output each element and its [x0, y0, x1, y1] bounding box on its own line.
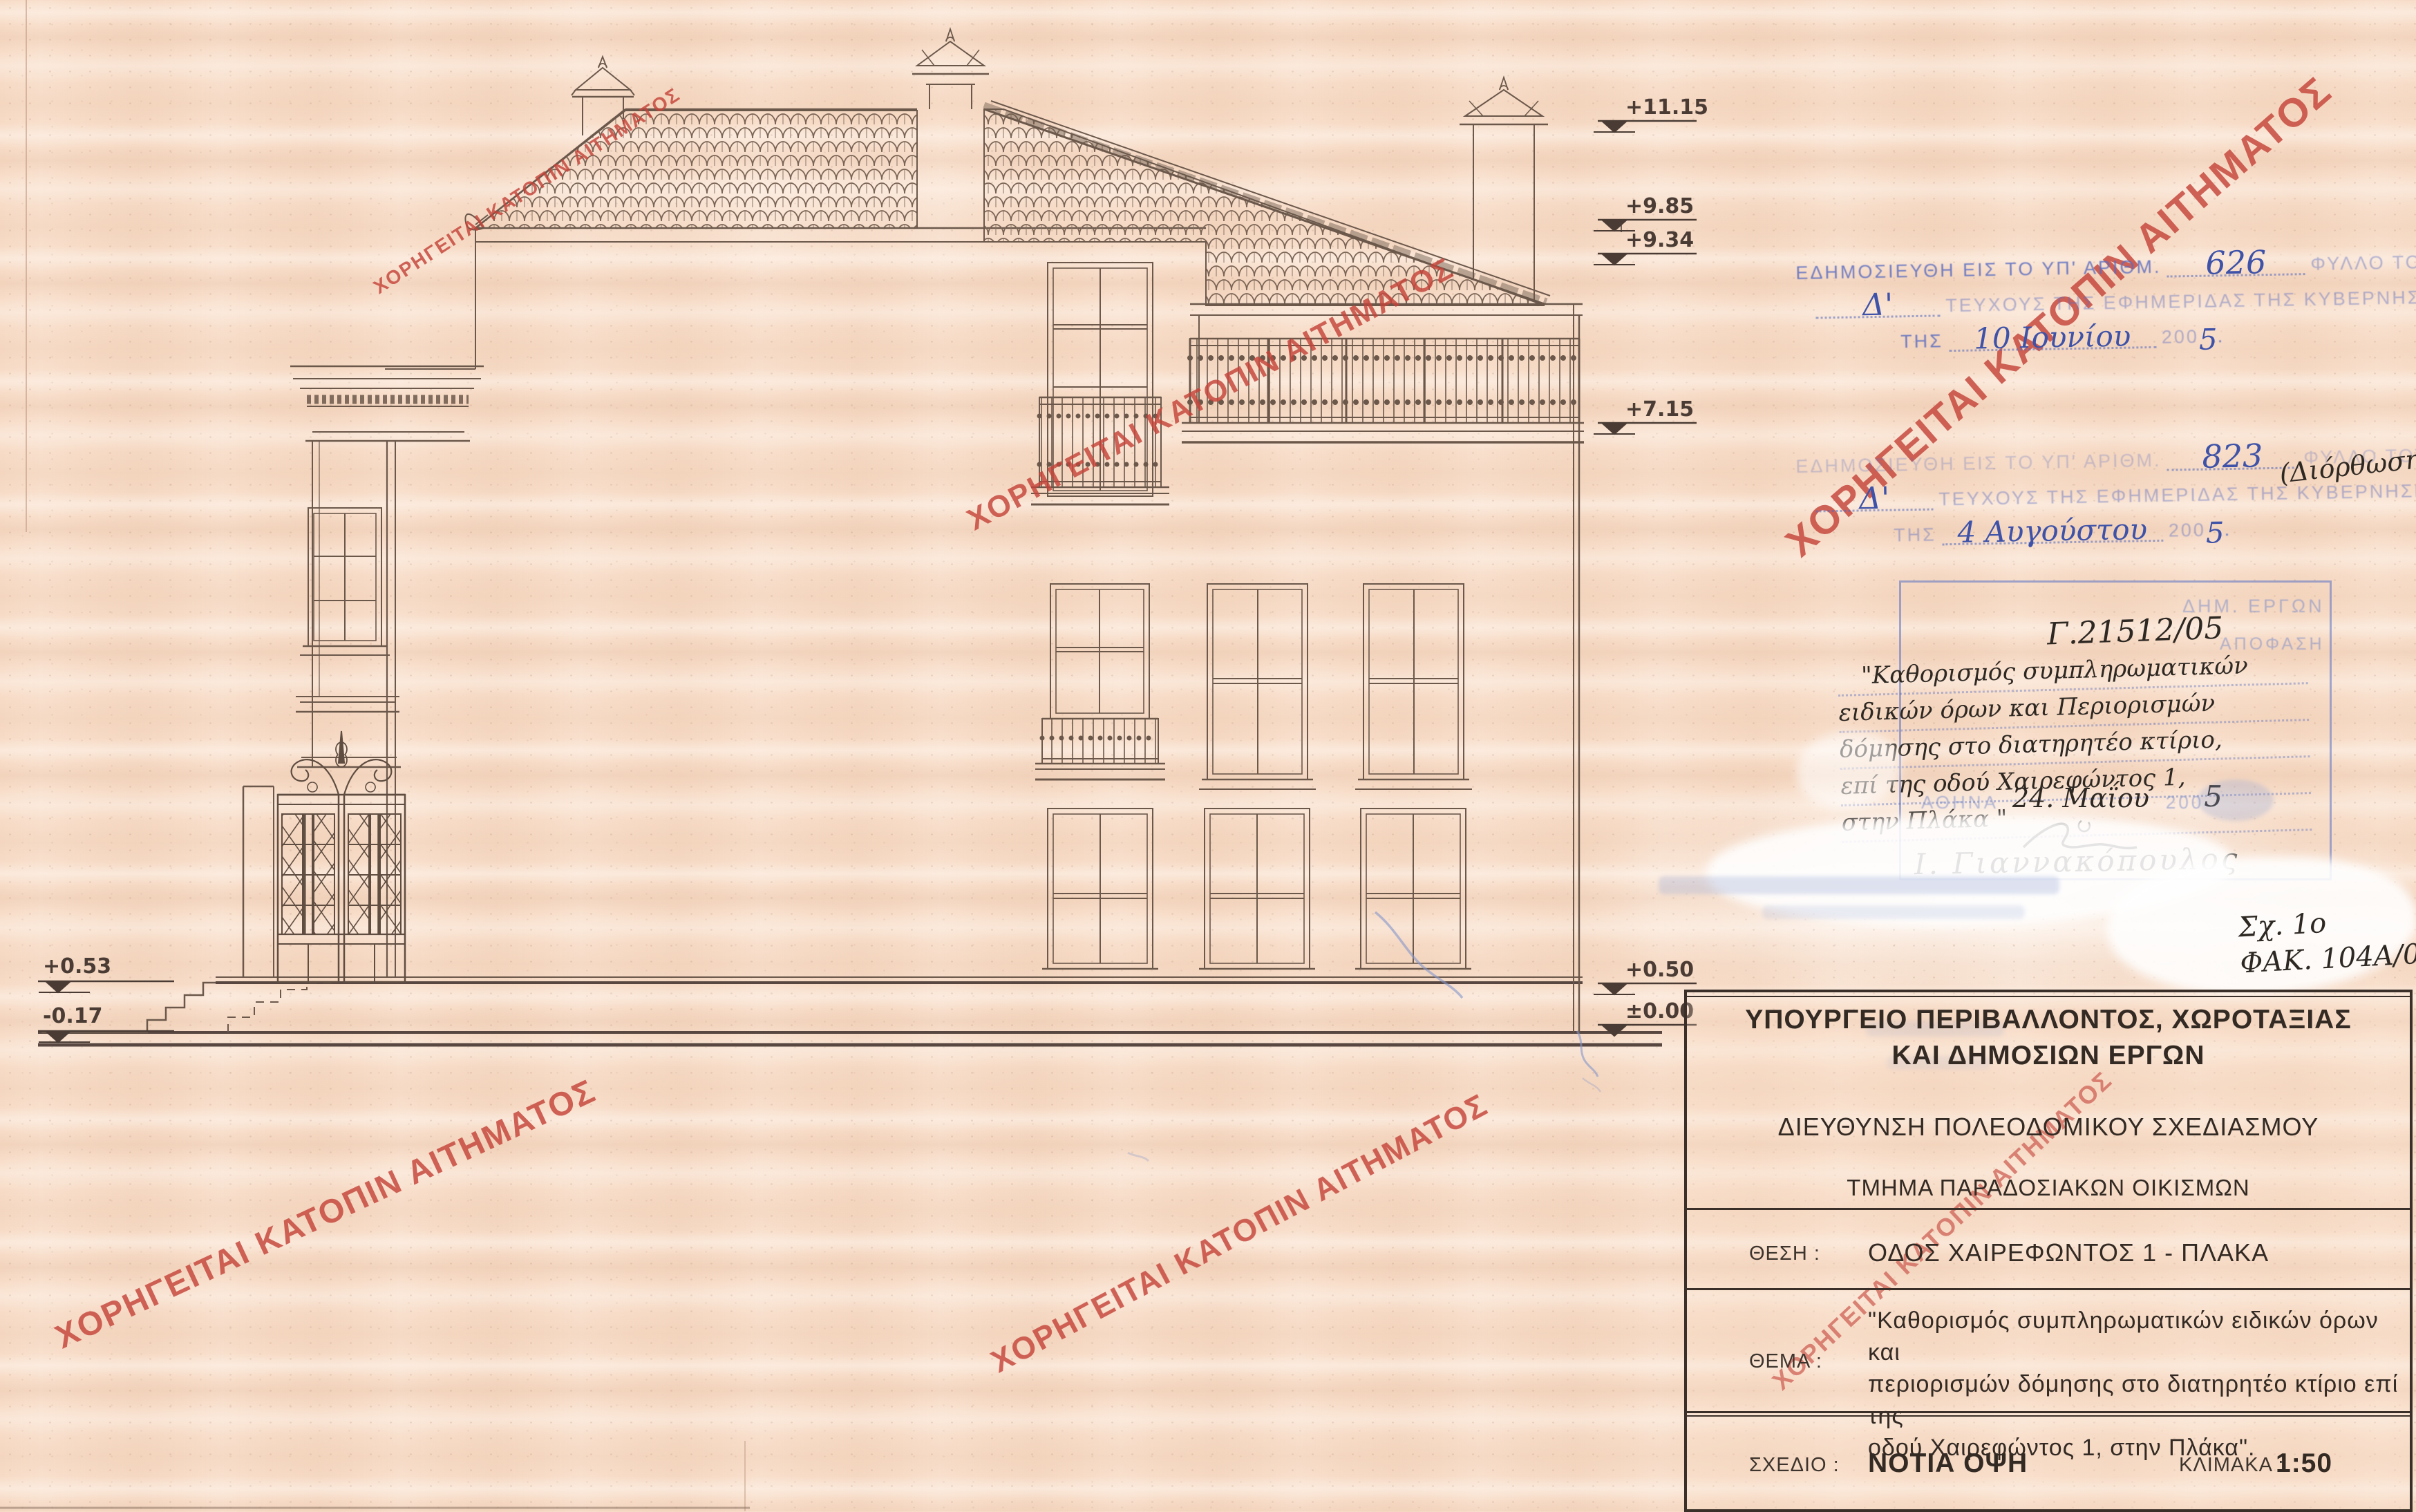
middle-balconette-slab: [1035, 764, 1165, 779]
location-label: ΘΕΣΗ :: [1749, 1242, 1820, 1265]
subject-label: ΘΕΜΑ :: [1749, 1350, 1822, 1373]
stamp1-period: .: [2217, 325, 2225, 347]
title-block-divider-3: [1687, 1411, 2410, 1413]
faded-stamp-smudge-1: [1659, 876, 2059, 894]
stamp1-line1-prefix: ΕΔΗΜΟΣΙΕΥΘΗ ΕΙΣ ΤΟ ΥΠ' ΑΡΙΘΜ.: [1795, 256, 2162, 284]
stamp2-issue-field: Δ': [1815, 485, 1934, 513]
decision-protocol-number: Γ.21512/05: [2046, 611, 2224, 652]
stamp2-date-field: 4 Αυγούστου: [1941, 516, 2163, 546]
marker-11-15: +11.15: [1594, 95, 1708, 132]
bay-string-course: [296, 697, 401, 767]
main-roof-tiles: [475, 111, 917, 228]
blue-pencil-scribbles: [1128, 912, 1601, 1161]
marker-7-15: +7.15: [1594, 397, 1697, 434]
scanned-architectural-drawing-sheet: { "watermark": { "text": "ΧΟΡΗΓΕΙΤΑΙ ΚΑΤ…: [0, 0, 2416, 1511]
marker-minus-0-17: -0.17: [38, 1004, 174, 1042]
stamp1-number-field: 626: [2167, 248, 2305, 277]
middle-balconette-railing: [1042, 719, 1158, 764]
upper-corner-return: [385, 242, 475, 369]
drawing-label: ΣΧΕΔΙΟ :: [1749, 1454, 1840, 1477]
title-block-divider-3b: [1687, 1415, 2410, 1417]
ground-door-2: [1199, 809, 1315, 969]
attic-door-railing: [1039, 397, 1161, 487]
marker-0-00: ±0.00: [1598, 999, 1697, 1036]
title-block-divider-1: [1687, 1208, 2410, 1210]
stamp2-issue-handwritten: Δ': [1859, 481, 1890, 517]
iron-gate: [278, 731, 405, 982]
svg-text:+7.15: +7.15: [1625, 397, 1694, 422]
courtyard-base-line: [216, 977, 1583, 983]
stamp2-year-stamp: 200: [2169, 520, 2207, 542]
subject-value: "Καθορισμός συμπληρωματικών ειδικών όρων…: [1868, 1305, 2410, 1464]
middle-french-window: [1050, 584, 1149, 719]
marker-9-34: +9.34: [1594, 221, 1697, 265]
center-chimney: [912, 29, 989, 109]
faded-stamp-smudge-2: [1762, 905, 2025, 919]
elevation-markers-right: +11.15 +9.85 +9.34 +7.15 +0.50: [1594, 95, 1708, 1036]
scale-label: ΚΛΙΜΑΚΑ :: [2179, 1454, 2284, 1477]
middle-window-c: [1355, 584, 1472, 789]
corner-bay-entablature: [290, 366, 484, 441]
subject-line-2: περιορισμών δόμησης στο διατηρητέο κτίρι…: [1868, 1368, 2410, 1432]
directorate-name: ΔΙΕΥΘΥΝΣΗ ΠΟΛΕΟΔΟΜΙΚΟΥ ΣΧΕΔΙΑΣΜΟΥ: [1687, 1113, 2410, 1142]
subject-line-1: "Καθορισμός συμπληρωματικών ειδικών όρων…: [1868, 1305, 2410, 1368]
svg-text:+9.85: +9.85: [1625, 194, 1694, 218]
stamp2-line2: ΤΕΥΧΟΥΣ ΤΗΣ ΕΦΗΜΕΡΙΔΑΣ ΤΗΣ ΚΥΒΕΡΝΗΣΕΩΣ: [1938, 480, 2416, 510]
marker-0-50: +0.50: [1594, 958, 1697, 994]
stamp1-date-field: 10 Ιουνίου: [1948, 323, 2156, 352]
drawing-value: ΝΟΤΙΑ ΟΨΗ: [1868, 1448, 2028, 1479]
middle-window-b: [1199, 584, 1316, 789]
marker-0-53: +0.53: [38, 954, 174, 992]
stamp1-year-handwritten: 5: [2199, 329, 2218, 350]
elevation-markers-left: +0.53 -0.17: [38, 954, 174, 1042]
svg-text:+11.15: +11.15: [1625, 95, 1708, 120]
file-note-handwritten: Σχ. 1ο ΦΑΚ. 104Α/05: [2238, 902, 2416, 980]
svg-text:+0.50: +0.50: [1625, 958, 1694, 982]
stamp2-line1-prefix: ΕΔΗΜΟΣΙΕΥΘΗ ΕΙΣ ΤΟ ΥΠ' ΑΡΙΘΜ.: [1795, 450, 2162, 478]
stamp2-year-handwritten: 5: [2206, 522, 2225, 543]
stamp1-number-handwritten: 626: [2205, 243, 2267, 282]
stamp2-tis: ΤΗΣ: [1894, 524, 1936, 546]
marker-9-85: +9.85: [1594, 194, 1697, 231]
location-value: ΟΔΟΣ ΧΑΙΡΕΦΩΝΤΟΣ 1 - ΠΛΑΚΑ: [1868, 1238, 2269, 1267]
title-block: ΥΠΟΥΡΓΕΙΟ ΠΕΡΙΒΑΛΛΟΝΤΟΣ, ΧΩΡΟΤΑΞΙΑΣ ΚΑΙ …: [1684, 990, 2413, 1512]
svg-text:-0.17: -0.17: [43, 1004, 102, 1028]
scale-value: 1:50: [2276, 1448, 2332, 1479]
ministry-name-line2: ΚΑΙ ΔΗΜΟΣΙΩΝ ΕΡΓΩΝ: [1687, 1038, 2410, 1074]
ministry-name-line1: ΥΠΟΥΡΓΕΙΟ ΠΕΡΙΒΑΛΛΟΝΤΟΣ, ΧΩΡΟΤΑΞΙΑΣ: [1687, 1002, 2410, 1038]
publication-stamp-1: ΕΔΗΜΟΣΙΕΥΘΗ ΕΙΣ ΤΟ ΥΠ' ΑΡΙΘΜ. 626 ΦΥΛΛΟ …: [1795, 245, 2416, 364]
bay-window: [300, 508, 390, 655]
long-balcony-railing: [1190, 339, 1579, 423]
stamp1-line2: ΤΕΥΧΟΥΣ ΤΗΣ ΕΦΗΜΕΡΙΔΑΣ ΤΗΣ ΚΥΒΕΡΝΗΣΕΩΣ: [1945, 286, 2416, 316]
ground-door-1: [1042, 809, 1158, 969]
stamp1-tis: ΤΗΣ: [1900, 330, 1943, 352]
ground-door-3: [1355, 809, 1471, 969]
stamp2-date-handwritten: 4 Αυγούστου: [1957, 512, 2147, 549]
street-ground-line: [38, 1032, 1662, 1045]
title-block-inner-border: [1687, 996, 2410, 997]
right-chimney: [1460, 77, 1548, 300]
stamp1-issue-field: Δ': [1815, 291, 1941, 319]
svg-text:+9.34: +9.34: [1625, 228, 1694, 252]
title-block-divider-2: [1687, 1288, 2410, 1290]
hidden-stair-dashed: [228, 983, 333, 1032]
stamp1-date-handwritten: 10 Ιουνίου: [1974, 319, 2131, 356]
department-name: ΤΜΗΜΑ ΠΑΡΑΔΟΣΙΑΚΩΝ ΟΙΚΙΣΜΩΝ: [1687, 1175, 2410, 1201]
stamp1-issue-handwritten: Δ': [1862, 287, 1894, 323]
stamp2-period: .: [2224, 519, 2231, 540]
svg-text:+0.53: +0.53: [43, 954, 111, 979]
stamp1-line1-suffix: ΦΥΛΛΟ ΤΟΥ: [2310, 252, 2416, 275]
long-balcony-slab: [1182, 423, 1584, 442]
blue-ink-splotch: [2198, 779, 2274, 821]
stamp2-number-handwritten: 823: [2202, 437, 2263, 475]
stamp1-year-stamp: 200: [2162, 326, 2200, 348]
decision-city-stamp: ΑΘΗΝΑ: [1921, 792, 1999, 813]
garden-wall-strip: [243, 786, 274, 977]
title-block-header: ΥΠΟΥΡΓΕΙΟ ΠΕΡΙΒΑΛΛΟΝΤΟΣ, ΧΩΡΟΤΑΞΙΑΣ ΚΑΙ …: [1687, 1002, 2410, 1201]
